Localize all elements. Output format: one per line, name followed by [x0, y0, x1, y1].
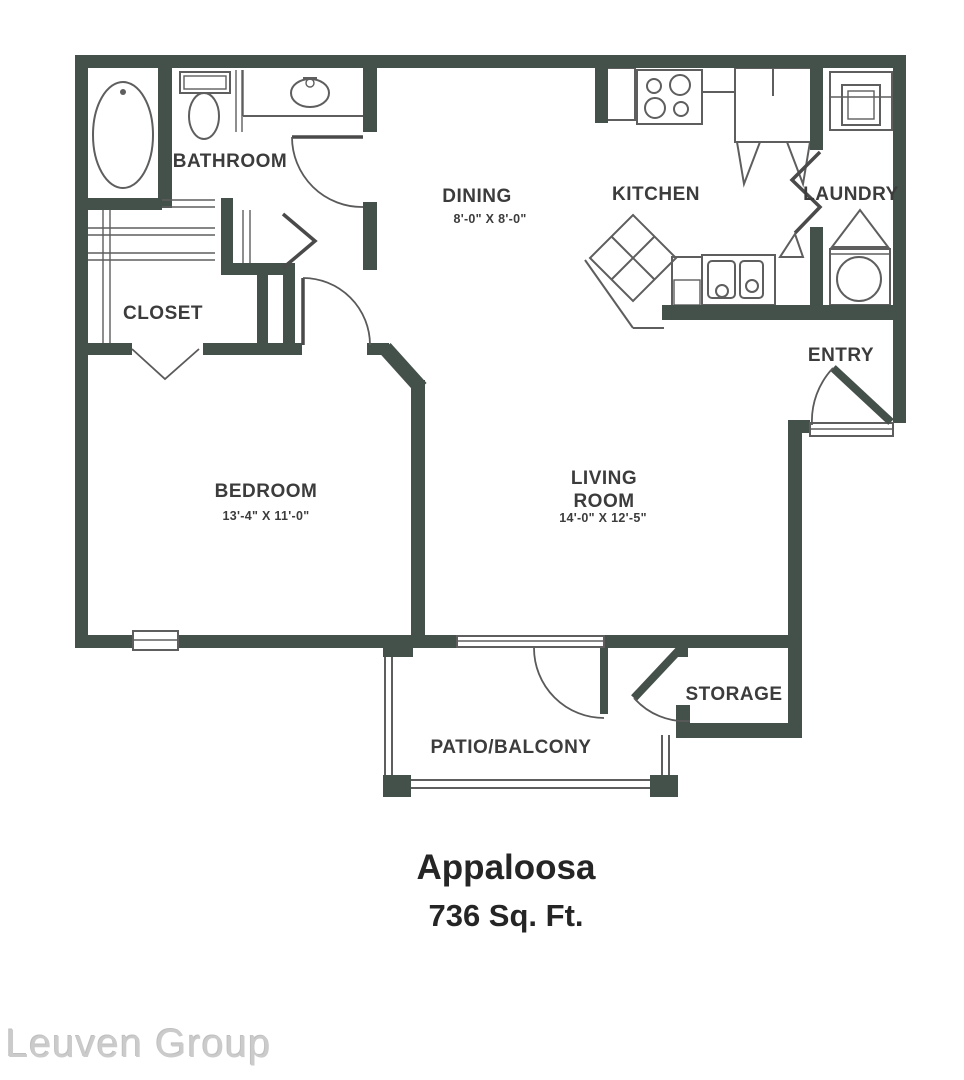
watermark: Leuven Group: [6, 1022, 272, 1067]
closet-door-chevron: [132, 349, 199, 379]
wall-bedroom-living: [411, 380, 425, 648]
wall-bathroom-bottom: [88, 198, 162, 210]
wall-right-lower: [788, 420, 802, 738]
patio-railing: [385, 655, 669, 788]
bedroom-dims: 13'-4" X 11'-0": [223, 509, 310, 523]
bedroom-label: BEDROOM: [215, 481, 318, 502]
dining-label: DINING: [442, 186, 512, 207]
plan-name: Appaloosa: [417, 848, 596, 887]
wall-top: [75, 55, 906, 68]
wall-bedroom-top-2: [203, 343, 302, 355]
refrigerator-fixture: [735, 68, 812, 184]
wall-kitchen-stub: [595, 55, 608, 123]
bathtub-fixture: [93, 82, 153, 188]
floor-plan-image: BATHROOM CLOSET BEDROOM 13'-4" X 11'-0" …: [0, 0, 964, 1080]
laundry-label: LAUNDRY: [803, 184, 899, 205]
patio-slider-door: [457, 636, 604, 647]
kitchen-cabinet: [607, 68, 635, 120]
patio-corner-se: [650, 775, 678, 797]
toilet-partition: [236, 70, 242, 132]
wall-storage-bottom: [676, 723, 802, 738]
vanity-counter: [243, 70, 363, 116]
kitchen-label: KITCHEN: [612, 184, 700, 205]
kitchen-sink-fixture: [702, 255, 775, 305]
patio-swing-door: [534, 648, 608, 718]
entry-threshold: [810, 423, 893, 436]
storage-label: STORAGE: [685, 684, 782, 705]
closet-label: CLOSET: [123, 303, 203, 324]
bedroom-door: [303, 278, 370, 345]
wall-closet-corner: [221, 198, 233, 268]
wall-hall-b: [283, 275, 295, 345]
wall-entry-stub: [788, 420, 810, 433]
wall-living-bottom-left: [411, 635, 457, 648]
range-fixture: [637, 70, 702, 124]
living-room-dims: 14'-0" X 12'-5": [559, 511, 647, 525]
bathroom-label: BATHROOM: [173, 151, 287, 172]
plan-area: 736 Sq. Ft.: [428, 898, 583, 933]
floor-plan-svg: BATHROOM CLOSET BEDROOM 13'-4" X 11'-0" …: [0, 0, 964, 1080]
bathroom-door: [292, 137, 363, 207]
washer-fixture: [830, 72, 892, 130]
living-room-label-line1: LIVING: [571, 468, 637, 489]
toilet-fixture: [180, 72, 230, 139]
wall-tub-partition: [158, 68, 172, 208]
wall-kitchen-bottom: [662, 305, 906, 320]
wall-bedroom-bottom-2: [178, 635, 411, 648]
wall-laundry-left-upper: [810, 55, 823, 150]
wall-bath-right-lower: [363, 202, 377, 270]
wall-bath-right-upper: [363, 68, 377, 132]
living-room-label-line2: ROOM: [573, 491, 634, 512]
dryer-fixture: [830, 210, 890, 305]
island-fixture: [590, 215, 676, 301]
patio-corner-sw: [383, 775, 411, 797]
wall-right-upper: [893, 55, 906, 423]
vanity-sink-fixture: [291, 78, 329, 107]
patio-corner-nw: [383, 637, 413, 657]
wall-laundry-left-lower: [810, 227, 823, 320]
dining-dims: 8'-0" X 8'-0": [453, 212, 526, 226]
patio-label: PATIO/BALCONY: [431, 737, 592, 758]
wall-bedroom-bottom-1: [75, 635, 133, 648]
entry-label: ENTRY: [808, 345, 874, 366]
wall-storage-top: [604, 635, 788, 648]
tub-drain: [120, 89, 126, 95]
bedroom-window: [133, 631, 178, 650]
linen-closet-door: [283, 214, 315, 268]
wall-bedroom-top-1: [75, 343, 132, 355]
wall-hall-a: [257, 263, 268, 345]
entry-door: [812, 368, 891, 425]
